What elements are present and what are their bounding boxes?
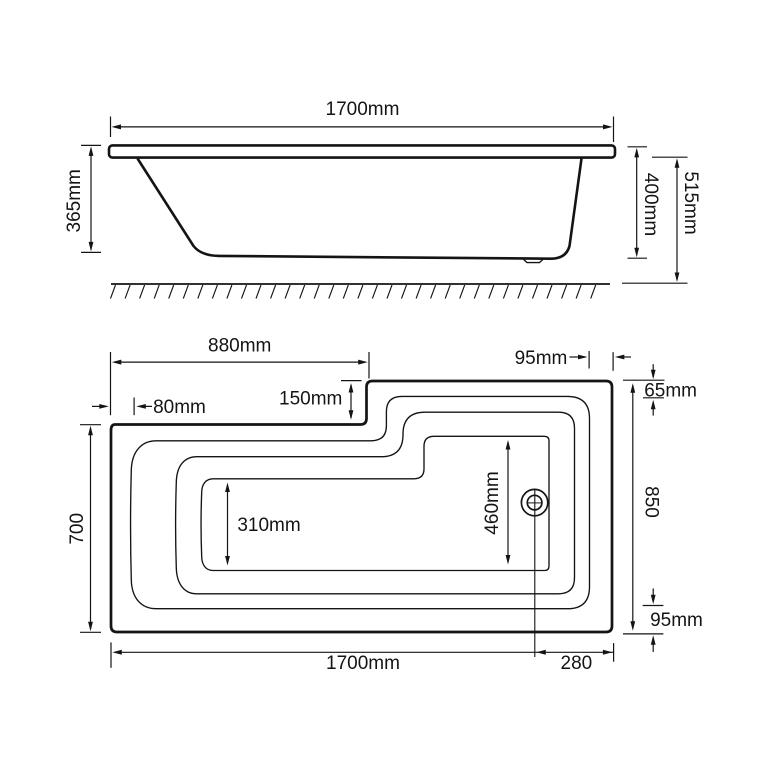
svg-text:460mm: 460mm <box>482 471 503 534</box>
svg-text:1700mm: 1700mm <box>326 99 400 120</box>
svg-text:880mm: 880mm <box>208 335 271 356</box>
svg-text:95mm: 95mm <box>515 348 568 369</box>
svg-text:80mm: 80mm <box>153 397 206 418</box>
svg-text:65mm: 65mm <box>644 381 697 402</box>
svg-text:280: 280 <box>561 653 593 674</box>
svg-text:400mm: 400mm <box>640 173 661 236</box>
svg-text:150mm: 150mm <box>279 389 342 410</box>
svg-text:1700mm: 1700mm <box>326 653 400 674</box>
svg-text:515mm: 515mm <box>680 171 701 234</box>
svg-text:365mm: 365mm <box>64 169 85 232</box>
svg-text:850: 850 <box>641 486 662 518</box>
svg-text:310mm: 310mm <box>237 515 300 536</box>
svg-text:700: 700 <box>67 513 88 545</box>
svg-text:95mm: 95mm <box>650 610 703 631</box>
